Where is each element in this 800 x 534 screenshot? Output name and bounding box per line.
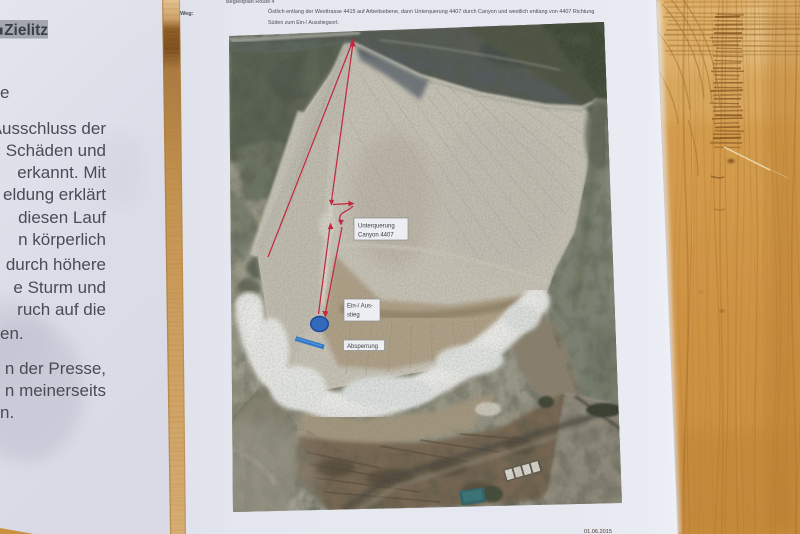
svg-text:Ausschluss der: Ausschluss der bbox=[0, 119, 106, 138]
svg-text:Weg:: Weg: bbox=[180, 11, 194, 17]
svg-text:n der Presse,: n der Presse, bbox=[5, 359, 106, 378]
svg-text:Süden zum Ein-/ Ausstiegsort.: Süden zum Ein-/ Ausstiegsort. bbox=[268, 20, 339, 26]
svg-text:01.06.2015: 01.06.2015 bbox=[584, 529, 612, 534]
svg-text:diesen Lauf: diesen Lauf bbox=[18, 208, 106, 227]
svg-text:Östlich entlang der Westtrasse: Östlich entlang der Westtrasse 4415 auf … bbox=[268, 8, 594, 15]
svg-text:e Sturm und: e Sturm und bbox=[13, 278, 106, 297]
svg-text:en.: en. bbox=[0, 324, 24, 343]
svg-text:n meinerseits: n meinerseits bbox=[5, 381, 106, 400]
svg-text:n körperlich: n körperlich bbox=[18, 230, 106, 249]
svg-text:durch höhere: durch höhere bbox=[6, 255, 106, 274]
svg-text:Absperrung: Absperrung bbox=[347, 344, 378, 350]
svg-text:e: e bbox=[0, 83, 9, 102]
svg-text:ruch auf die: ruch auf die bbox=[17, 300, 106, 319]
svg-text:Unterquerung: Unterquerung bbox=[358, 224, 395, 230]
svg-text:Zielitz: Zielitz bbox=[4, 22, 48, 39]
svg-text:Canyon 4407: Canyon 4407 bbox=[358, 233, 394, 239]
svg-text:eldung erklärt: eldung erklärt bbox=[3, 185, 106, 204]
svg-text:Schäden und: Schäden und bbox=[6, 141, 106, 160]
svg-text:Ein-/ Aus-: Ein-/ Aus- bbox=[347, 304, 373, 310]
svg-text:erkannt. Mit: erkannt. Mit bbox=[17, 163, 106, 182]
svg-text:stieg: stieg bbox=[347, 313, 360, 319]
svg-text:n.: n. bbox=[0, 403, 14, 422]
svg-text:Begleitplan Route 4: Begleitplan Route 4 bbox=[226, 0, 275, 5]
